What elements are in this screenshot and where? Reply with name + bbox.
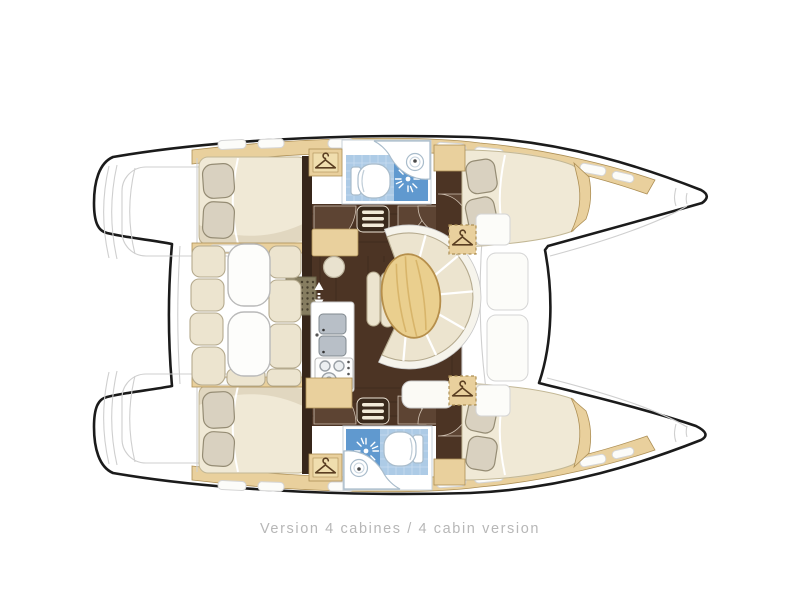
- chart-seat: [402, 381, 454, 408]
- wardrobe-locker-dashed: [449, 225, 476, 254]
- caption: Version 4 cabines / 4 cabin version: [0, 521, 800, 537]
- catamaran-floorplan: [0, 0, 800, 600]
- wardrobe-locker-dashed: [449, 376, 476, 405]
- cockpit-table: [228, 244, 270, 306]
- coachroof-window: [487, 253, 528, 310]
- galley-faucet: [315, 333, 318, 336]
- pouf: [367, 272, 380, 326]
- head-forward: [342, 140, 431, 204]
- head-aft: [343, 426, 432, 490]
- nav-table: [312, 229, 358, 256]
- wardrobe-locker: [309, 454, 342, 481]
- galley-cabinet: [306, 378, 352, 408]
- coachroof-window: [487, 315, 528, 381]
- wardrobe-locker: [309, 149, 342, 176]
- boat-floorplan-page: Version 4 cabines / 4 cabin version: [0, 0, 800, 600]
- cabinet: [434, 459, 465, 485]
- cabinet: [434, 145, 465, 171]
- cockpit: [190, 244, 301, 386]
- nav-stool: [324, 257, 345, 278]
- cockpit-table: [228, 312, 270, 376]
